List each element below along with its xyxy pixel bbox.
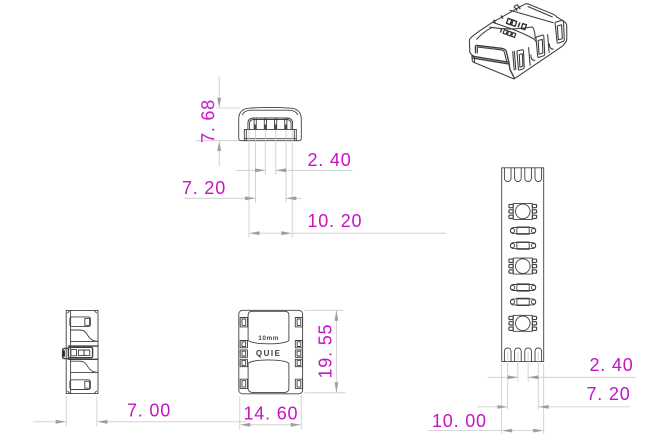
svg-text:10mm: 10mm [258, 335, 279, 342]
svg-text:QUIE: QUIE [256, 349, 282, 358]
svg-text:2. 40: 2. 40 [590, 355, 634, 375]
svg-text:19. 55: 19. 55 [316, 324, 336, 379]
svg-text:10. 00: 10. 00 [432, 411, 487, 431]
svg-text:7. 00: 7. 00 [127, 401, 171, 421]
svg-text:7. 20: 7. 20 [182, 178, 226, 198]
svg-text:10. 20: 10. 20 [308, 211, 363, 231]
svg-text:7. 68: 7. 68 [198, 99, 218, 143]
svg-text:7. 20: 7. 20 [587, 384, 631, 404]
svg-text:2. 40: 2. 40 [308, 150, 352, 170]
svg-text:14. 60: 14. 60 [244, 404, 299, 424]
